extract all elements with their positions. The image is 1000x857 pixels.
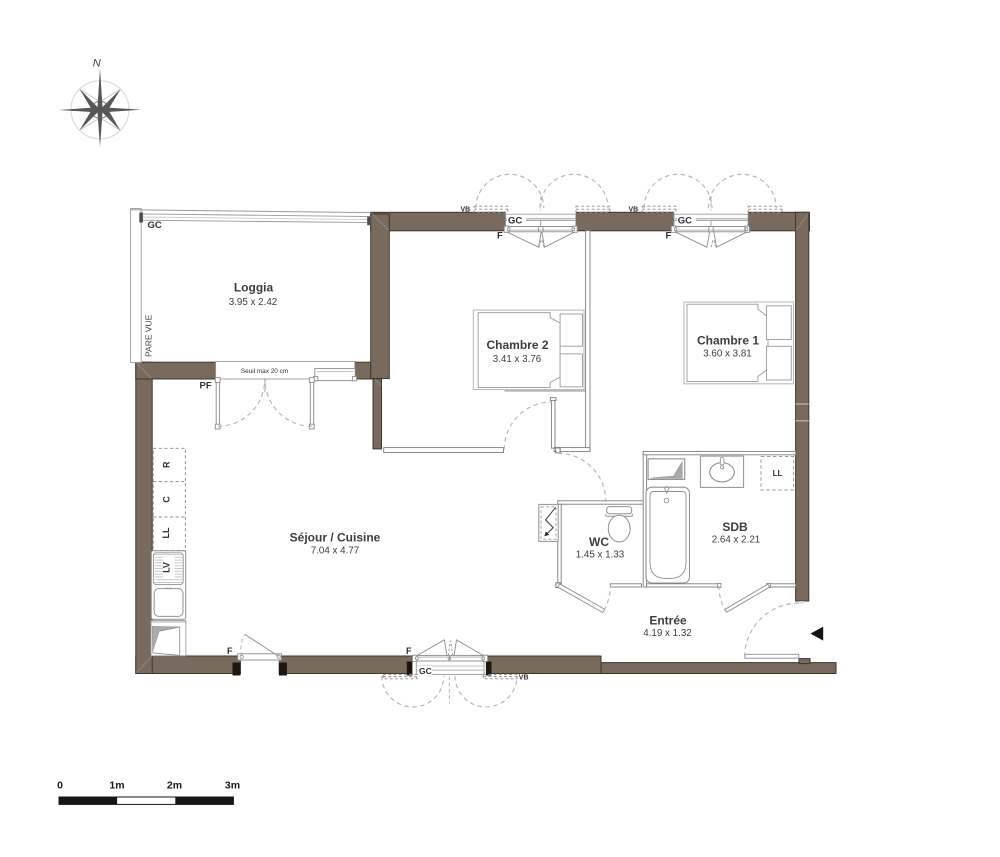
svg-text:3.60 x 3.81: 3.60 x 3.81: [703, 349, 751, 360]
svg-text:0: 0: [57, 780, 63, 792]
svg-text:1m: 1m: [109, 780, 124, 792]
svg-text:GC: GC: [678, 216, 692, 227]
svg-text:2.64 x 2.21: 2.64 x 2.21: [712, 535, 760, 546]
svg-text:2m: 2m: [167, 780, 182, 792]
svg-text:3m: 3m: [225, 780, 240, 792]
svg-text:F: F: [666, 231, 672, 242]
svg-text:LV: LV: [162, 562, 172, 573]
svg-text:Seuil max 20 cm: Seuil max 20 cm: [241, 368, 288, 375]
svg-text:N: N: [93, 57, 101, 69]
svg-text:C: C: [161, 496, 171, 503]
svg-text:3.41 x 3.76: 3.41 x 3.76: [493, 354, 542, 365]
svg-text:Chambre 2: Chambre 2: [486, 338, 548, 352]
svg-text:3.95 x 2.42: 3.95 x 2.42: [229, 297, 277, 308]
svg-text:GC: GC: [148, 220, 162, 231]
svg-text:LL: LL: [773, 469, 783, 478]
svg-text:PF: PF: [200, 381, 212, 392]
svg-text:VB: VB: [629, 207, 639, 214]
svg-text:F: F: [497, 231, 503, 242]
svg-text:F: F: [406, 646, 412, 656]
svg-text:PARE VUE: PARE VUE: [144, 314, 154, 357]
svg-text:Chambre 1: Chambre 1: [697, 334, 759, 348]
svg-text:VB: VB: [519, 675, 529, 682]
svg-text:LL: LL: [161, 527, 171, 538]
svg-text:R: R: [161, 461, 171, 468]
svg-text:7.04 x 4.77: 7.04 x 4.77: [311, 546, 359, 557]
svg-text:GC: GC: [419, 666, 432, 676]
svg-text:SDB: SDB: [722, 520, 748, 534]
svg-text:GC: GC: [508, 216, 522, 227]
svg-text:1.45 x 1.33: 1.45 x 1.33: [576, 550, 625, 561]
svg-text:Séjour / Cuisine: Séjour / Cuisine: [290, 531, 381, 545]
svg-text:VB: VB: [461, 207, 471, 214]
svg-text:F: F: [227, 646, 233, 656]
svg-text:Entrée: Entrée: [649, 614, 687, 628]
svg-text:Loggia: Loggia: [234, 281, 274, 295]
svg-text:4.19 x 1.32: 4.19 x 1.32: [643, 628, 691, 639]
svg-text:WC: WC: [589, 535, 609, 549]
